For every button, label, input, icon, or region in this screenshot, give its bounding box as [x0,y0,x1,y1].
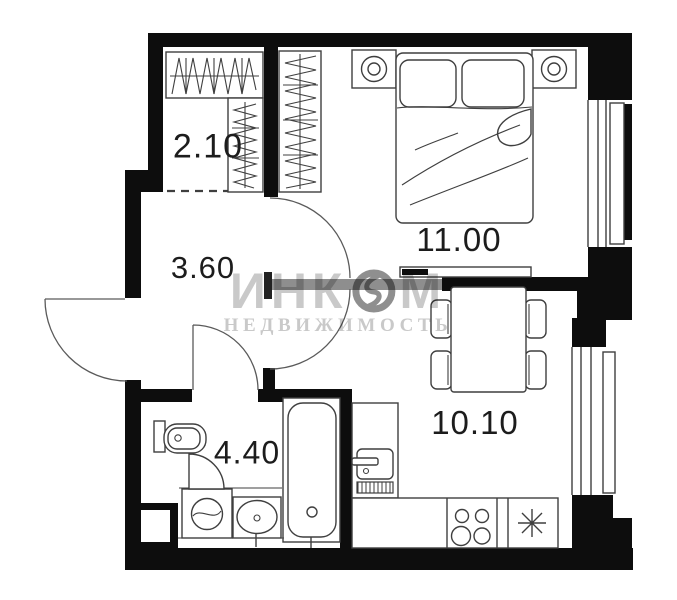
double-bed-symbol [396,53,533,223]
kitchen-sink-symbol [352,449,393,493]
kitchen-window [572,347,615,495]
bathroom-door-arc [193,325,258,390]
bedroom-door-arc [270,198,350,278]
fridge-snowflake-symbol [518,509,546,537]
kitchen-door-arc [270,289,350,369]
bedroom-wardrobe-symbol [279,51,321,192]
area-label-hallway: 3.60 [171,250,235,286]
area-label-bathroom: 4.40 [214,435,280,472]
dining-table-symbol [431,287,546,392]
wardrobe-top-hangers-symbol [166,52,263,98]
bedroom-window [588,100,624,247]
vent-shaft [141,510,170,542]
floor-plan-page: 2.10 3.60 11.00 10.10 4.40 ИНК М НЕДВИЖИ… [0,0,677,600]
nightstand-left-symbol [352,50,396,88]
area-label-bedroom: 11.00 [416,221,501,259]
floor-plan-drawing [0,0,677,600]
toilet-symbol [154,421,206,453]
area-label-wardrobe: 2.10 [173,128,243,167]
bathroom-sink-symbol [233,497,281,547]
area-label-kitchen: 10.10 [431,404,519,442]
nightstand-right-symbol [532,50,576,88]
tv-console-symbol [400,267,531,277]
entrance-door-arc [45,299,127,381]
bathtub-symbol [283,398,340,548]
